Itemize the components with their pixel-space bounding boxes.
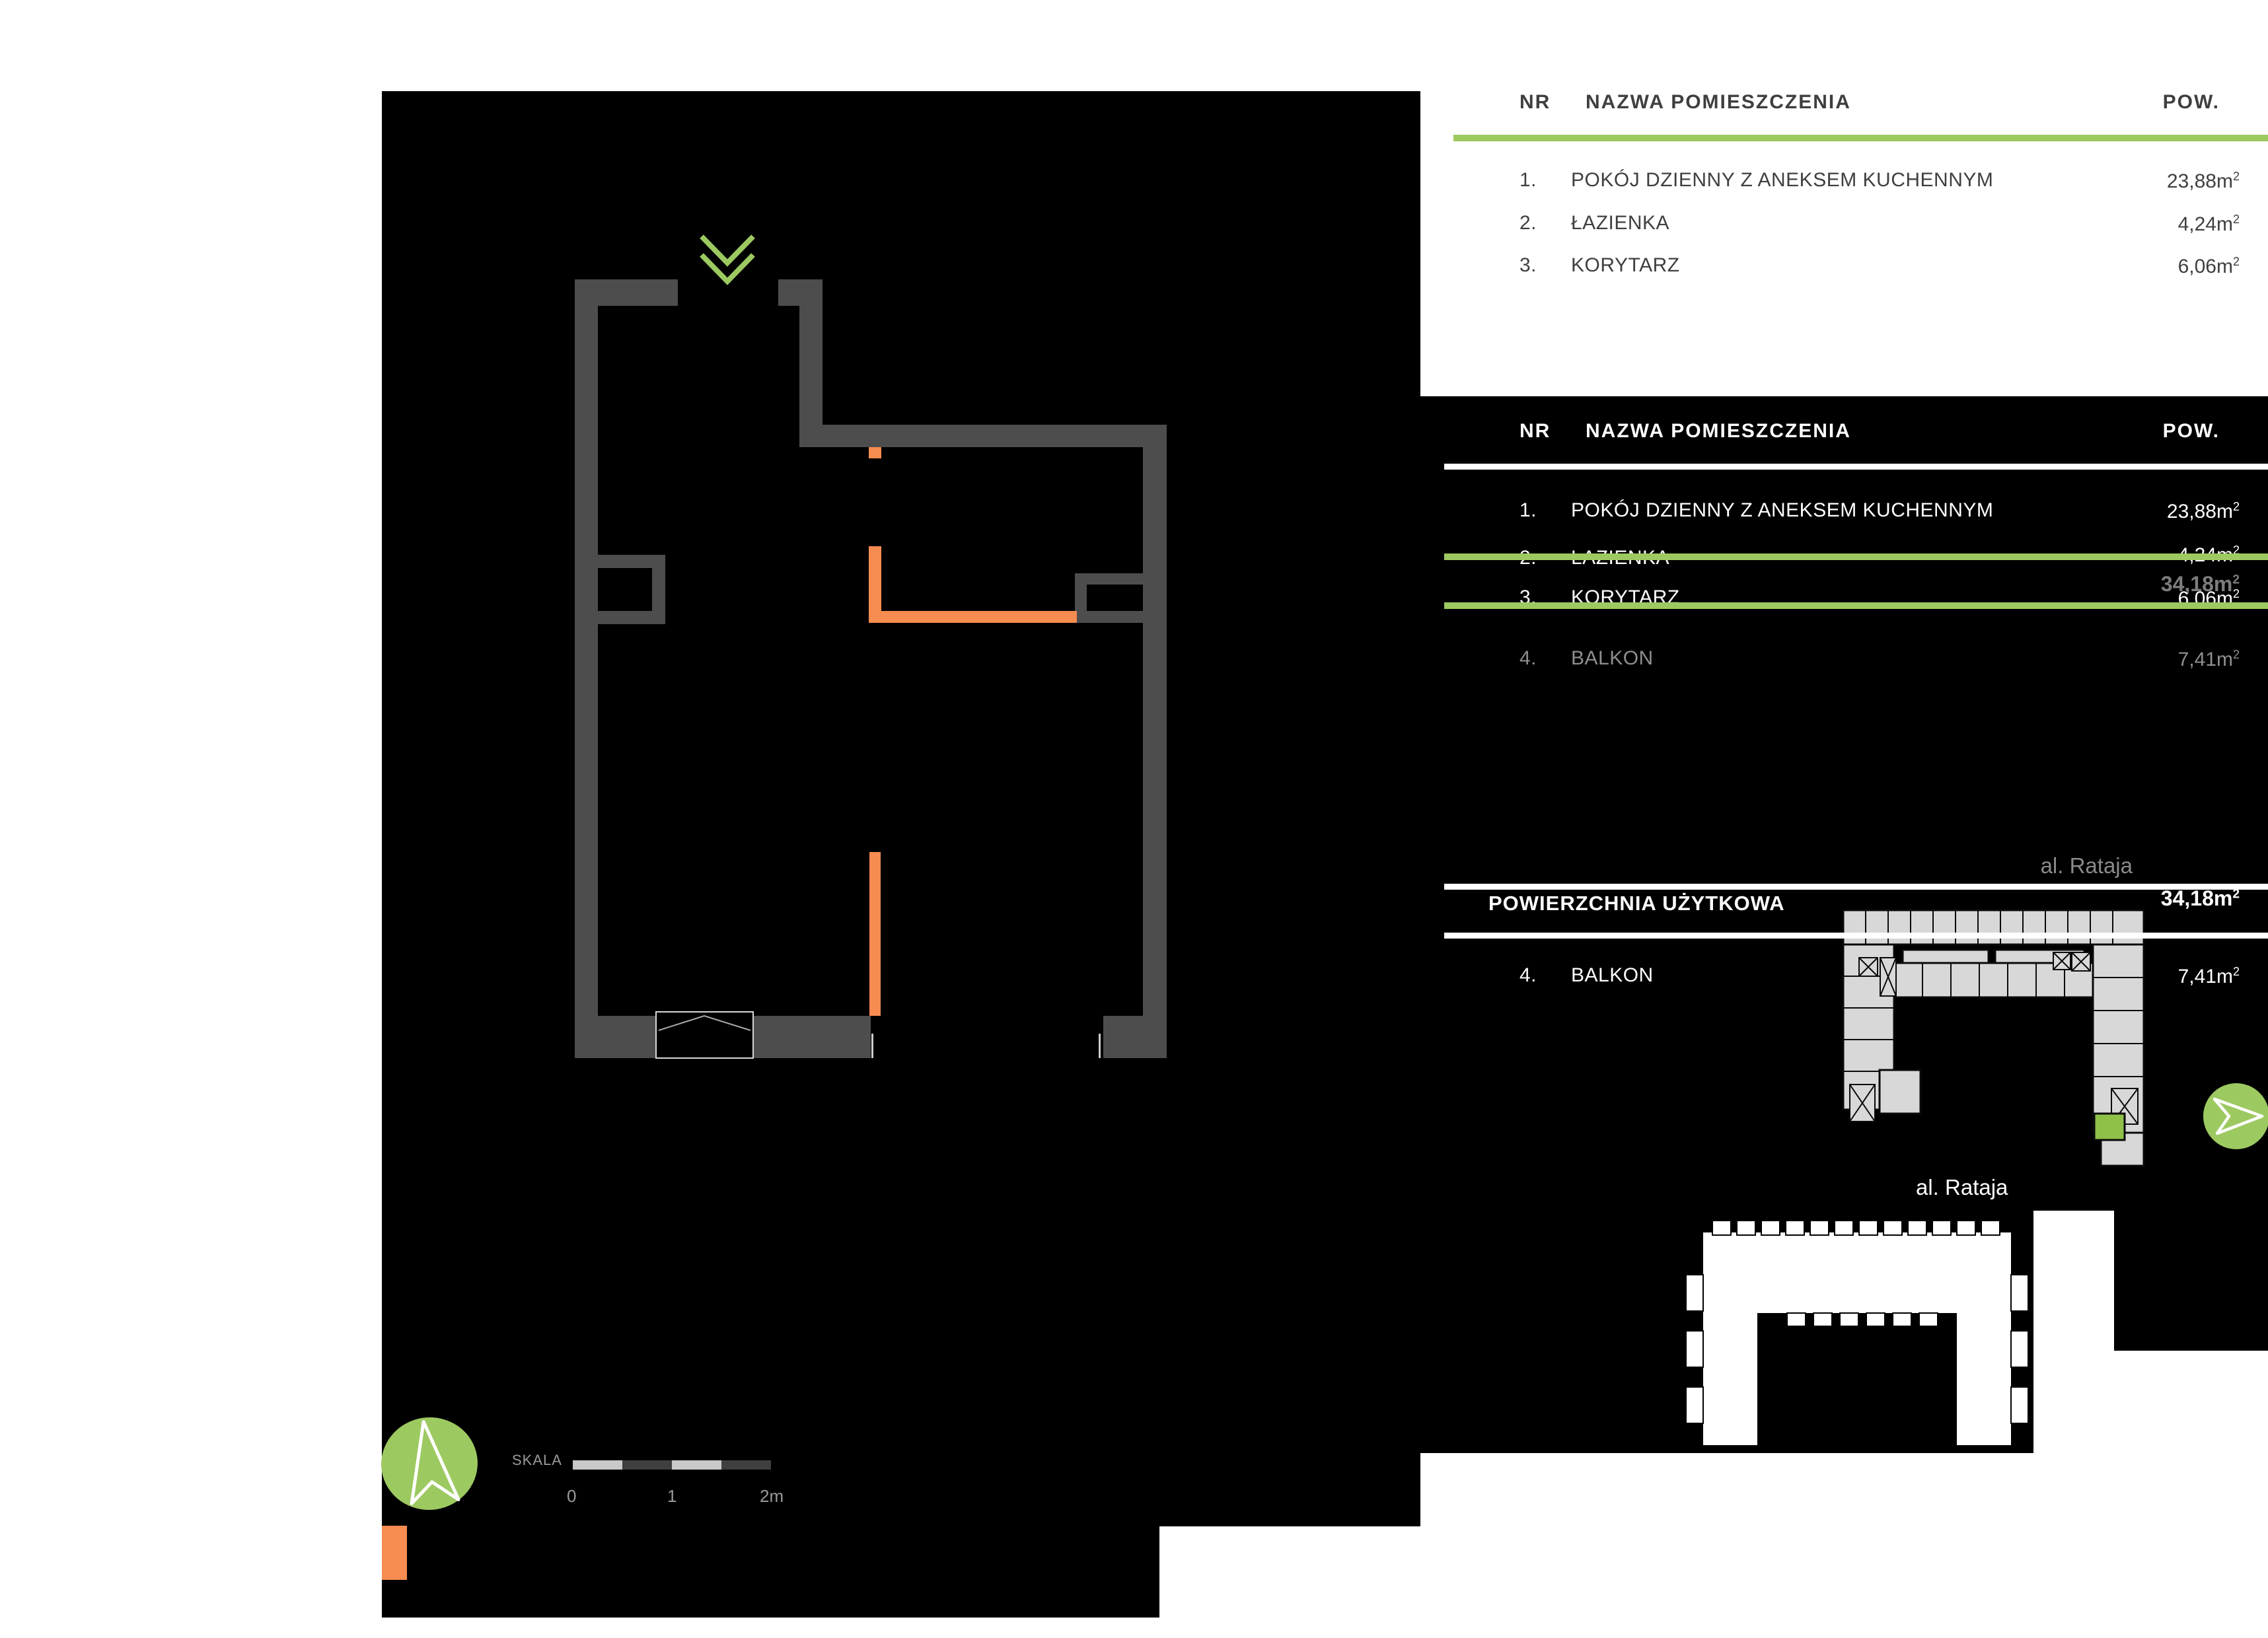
room-number: 4. <box>1519 649 1537 668</box>
summary-rule-bottom <box>1444 933 2268 939</box>
floorplan-panel <box>382 91 1420 1618</box>
scale-tick-2: 2m <box>760 1487 784 1505</box>
top-table-col-nr: NR <box>1519 92 1551 112</box>
room-number: 2. <box>1519 213 1537 233</box>
room-number: 4. <box>1519 966 1537 985</box>
dark-table-col-name: NAZWA POMIESZCZENIA <box>1586 421 1851 441</box>
top-table-col-name: NAZWA POMIESZCZENIA <box>1586 92 1851 112</box>
room-area: 23,88m2 <box>2167 501 2240 522</box>
room-number: 1. <box>1519 170 1537 190</box>
street-label: al. Rataja <box>2041 855 2133 876</box>
room-area: 7,41m2 <box>2178 966 2240 987</box>
dark-table-white-rule <box>1444 464 2268 470</box>
plan-card: NR NAZWA POMIESZCZENIA POW. 1. POKÓJ DZI… <box>0 0 2268 1638</box>
dark-table-panel <box>1420 396 2268 1351</box>
room-name: BALKON <box>1571 966 1654 985</box>
top-table-col-area: POW. <box>2163 92 2220 112</box>
room-name: POKÓJ DZIENNY Z ANEKSEM KUCHENNYM <box>1571 170 1993 190</box>
room-number: 1. <box>1519 501 1537 520</box>
room-number: 3. <box>1519 256 1537 275</box>
scale-tick-0: 0 <box>567 1487 576 1505</box>
summary-rule-top <box>1444 884 2268 890</box>
scale-label: SKALA <box>512 1453 562 1468</box>
room-name: ŁAZIENKA <box>1571 213 1669 233</box>
usable-area-value: 34,18m2 <box>2161 888 2240 909</box>
room-name: KORYTARZ <box>1571 256 1680 275</box>
scale-tick-1: 1 <box>667 1487 677 1505</box>
room-name: BALKON <box>1571 649 1654 668</box>
floorplan-panel-notch <box>1159 1526 1420 1618</box>
highlight-green-rule-2 <box>1444 602 2268 609</box>
room-area: 7,41m2 <box>2178 649 2240 670</box>
top-table-green-rule <box>1453 135 2268 141</box>
room-area: 4,24m2 <box>2178 213 2240 234</box>
highlight-green-rule-1 <box>1444 553 2268 560</box>
usable-area-label: POWIERZCHNIA UŻYTKOWA <box>1488 893 1785 913</box>
dark-table-col-area: POW. <box>2163 421 2220 441</box>
room-area: 23,88m2 <box>2167 170 2240 192</box>
street-label-bottom: al. Rataja <box>1916 1176 2008 1198</box>
dark-table-col-nr: NR <box>1519 421 1551 441</box>
room-area: 6,06m2 <box>2178 256 2240 277</box>
room-name: POKÓJ DZIENNY Z ANEKSEM KUCHENNYM <box>1571 501 1993 520</box>
siteplan-panel-ext <box>1420 1351 2033 1453</box>
